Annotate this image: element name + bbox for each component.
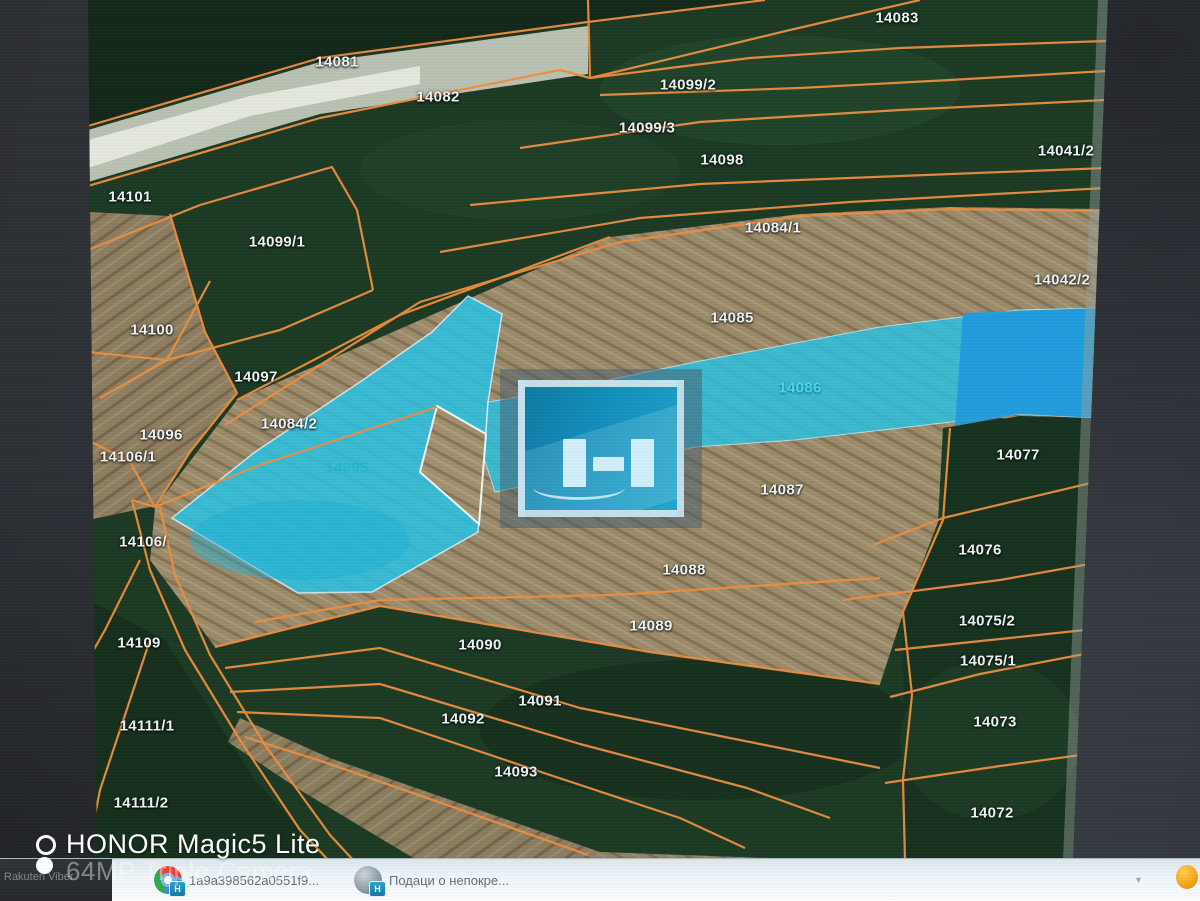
parcel-label-14111-2: 14111/2 xyxy=(114,795,169,812)
parcel-label-14081: 14081 xyxy=(315,54,358,71)
parcel-label-14095: 14095 xyxy=(325,460,368,477)
taskbar-item-viber-label: Rakuten Viber xyxy=(4,871,74,883)
parcel-label-14099-3: 14099/3 xyxy=(619,120,675,137)
parcel-label-14041-2: 14041/2 xyxy=(1038,143,1094,160)
parcel-label-14099-1: 14099/1 xyxy=(249,234,305,251)
logo-middle-bar xyxy=(593,457,624,471)
watermark-camera-spec: 64MP Triple Camera xyxy=(66,856,313,887)
parcel-label-14097: 14097 xyxy=(234,369,277,386)
parcel-label-14101: 14101 xyxy=(108,189,151,206)
parcel-label-14088: 14088 xyxy=(662,562,705,579)
parcel-label-14087: 14087 xyxy=(760,482,803,499)
parcel-label-14084-1: 14084/1 xyxy=(745,220,801,237)
gis-app-watermark-logo xyxy=(500,369,702,528)
logo-right-bar xyxy=(631,439,654,487)
parcel-label-14084-2: 14084/2 xyxy=(261,416,317,433)
logo-inner-square xyxy=(518,380,684,517)
parcel-label-14075-2: 14075/2 xyxy=(959,613,1015,630)
parcel-label-14096: 14096 xyxy=(139,427,182,444)
camera-ring-icon xyxy=(36,835,56,855)
parcel-label-14083: 14083 xyxy=(875,10,918,27)
tray-hidden-icons-arrow[interactable]: ▾ xyxy=(1136,875,1141,886)
parcel-label-14075-1: 14075/1 xyxy=(960,653,1016,670)
parcel-label-14091: 14091 xyxy=(518,693,561,710)
camera-dot-icon xyxy=(36,857,53,874)
gis-h-badge-icon: H xyxy=(369,881,386,897)
parcel-label-14092: 14092 xyxy=(441,711,484,728)
taskbar-item-podaci[interactable]: H Подаци о непокре... xyxy=(348,862,515,898)
globe-icon: H xyxy=(354,866,382,894)
parcel-label-14076: 14076 xyxy=(958,542,1001,559)
parcel-label-14089: 14089 xyxy=(629,618,672,635)
taskbar-item-podaci-label: Подаци о непокре... xyxy=(389,873,509,888)
parcel-label-14082: 14082 xyxy=(416,89,459,106)
parcel-label-14042-2: 14042/2 xyxy=(1034,272,1090,289)
parcel-label-14098: 14098 xyxy=(700,152,743,169)
parcel-label-14106-: 14106/ xyxy=(119,534,167,551)
parcel-label-14106-1: 14106/1 xyxy=(100,449,156,466)
parcel-label-14073: 14073 xyxy=(973,714,1016,731)
parcel-label-14090: 14090 xyxy=(458,637,501,654)
parcel-label-14093: 14093 xyxy=(494,764,537,781)
parcel-label-14085: 14085 xyxy=(710,310,753,327)
parcel-label-14100: 14100 xyxy=(130,322,173,339)
tray-notification-icon[interactable] xyxy=(1176,865,1198,889)
parcel-label-14109: 14109 xyxy=(117,635,160,652)
parcel-label-14086: 14086 xyxy=(778,380,821,397)
parcel-label-14099-2: 14099/2 xyxy=(660,77,716,94)
parcel-label-14111-1: 14111/1 xyxy=(120,718,175,735)
parcel-label-14072: 14072 xyxy=(970,805,1013,822)
parcel-label-14077: 14077 xyxy=(996,447,1039,464)
logo-swoosh xyxy=(533,475,625,500)
